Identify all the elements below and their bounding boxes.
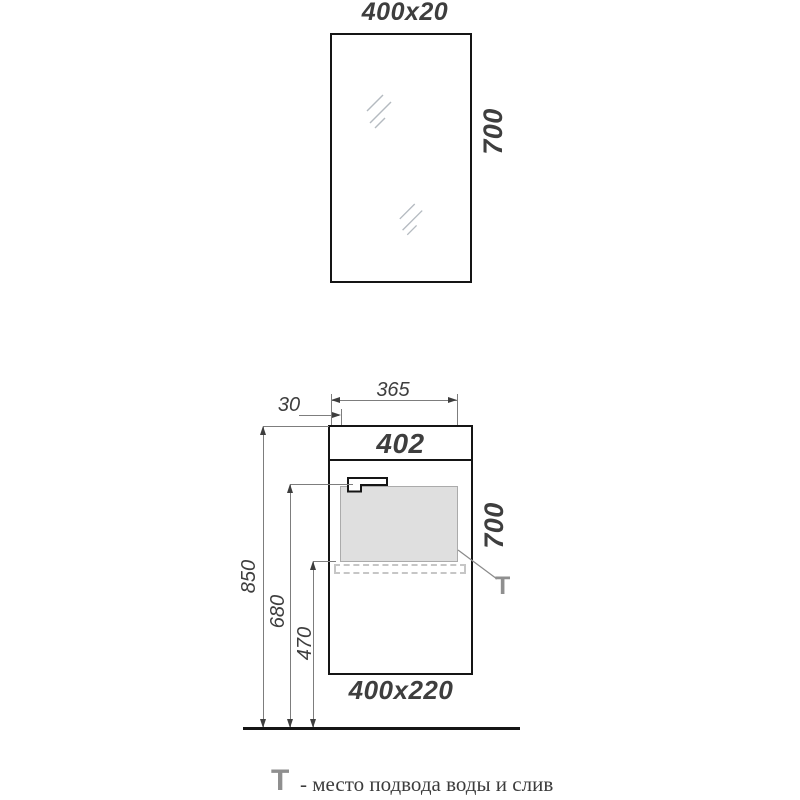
t-marker: T	[495, 572, 510, 601]
arrow-up-icon	[287, 484, 293, 493]
dim-30-label: 30	[269, 394, 309, 417]
cabinet-size-label: 400x220	[326, 675, 476, 706]
sink-basin	[340, 486, 458, 562]
mirror-height-dimension: 700	[463, 101, 523, 161]
cabinet-height-label: 700	[479, 502, 510, 549]
extension-line	[313, 561, 336, 562]
dim-470-dimension: 470	[276, 613, 336, 673]
mirror-shine-icon	[397, 199, 425, 237]
mirror-shine-icon	[364, 90, 394, 130]
arrow-right-icon	[448, 397, 457, 403]
mirror-outline	[330, 33, 472, 283]
cabinet-front-label: 402	[328, 428, 473, 460]
drain-dashed-outline	[334, 564, 466, 574]
t-leader-line	[457, 548, 499, 582]
extension-line	[263, 426, 329, 427]
mirror-size-label: 400x20	[320, 0, 490, 27]
dim-365-line	[331, 400, 457, 401]
cabinet-height-dimension: 700	[464, 495, 524, 555]
arrow-up-icon	[310, 561, 316, 570]
technical-drawing-page: 400x20 700 365 30 402 700 T	[0, 0, 800, 800]
arrow-right-icon	[332, 412, 341, 418]
arrow-up-icon	[260, 426, 266, 435]
arrow-left-icon	[331, 397, 340, 403]
dim-365-label: 365	[353, 379, 433, 402]
mirror-height-label: 700	[478, 108, 509, 155]
legend-t-symbol: T	[271, 764, 289, 798]
floor-line	[243, 727, 520, 730]
dim-470-label: 470	[295, 626, 318, 659]
extension-line	[331, 394, 332, 425]
legend-text: - место подвода воды и слив	[300, 772, 553, 797]
extension-line	[290, 484, 353, 485]
